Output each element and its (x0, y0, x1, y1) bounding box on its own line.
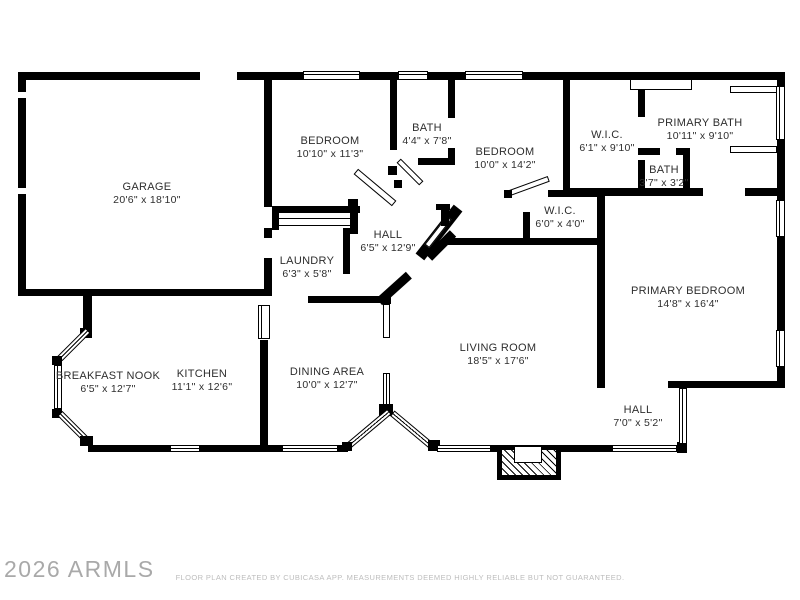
window (303, 71, 360, 80)
wall-segment (348, 199, 358, 208)
room-name: PRIMARY BEDROOM (631, 285, 745, 298)
room-label-living-room: LIVING ROOM 18'5" x 17'6" (460, 342, 537, 368)
window (398, 71, 428, 80)
wall-segment (523, 212, 530, 245)
room-label-bath-2: BATH 3'7" x 3'2" (639, 164, 688, 190)
wall-segment (436, 204, 450, 210)
closet-wall (272, 206, 279, 230)
room-dims: 6'5" x 12'9" (360, 242, 415, 255)
disclaimer-text: FLOOR PLAN CREATED BY CUBICASA APP. MEAS… (176, 573, 625, 582)
room-label-wic-1: W.I.C. 6'1" x 9'10" (579, 129, 634, 155)
room-dims: 10'11" x 9'10" (658, 130, 743, 143)
room-dims: 6'3" x 5'8" (280, 268, 334, 281)
wall-segment (18, 289, 272, 296)
bay-window (57, 328, 90, 361)
wall-segment (777, 72, 785, 86)
wall-segment (18, 72, 200, 80)
room-name: GARAGE (113, 181, 181, 194)
wall-segment (342, 442, 352, 451)
window (465, 71, 523, 80)
wall-segment (264, 258, 272, 296)
wall-segment (390, 72, 397, 150)
wall-segment (83, 296, 92, 332)
room-dims: 11'1" x 12'6" (172, 381, 233, 394)
wall-segment (548, 190, 604, 197)
front-door-leaf (383, 304, 390, 338)
wall-segment (18, 72, 26, 92)
room-dims: 10'0" x 12'7" (290, 379, 364, 392)
wall-segment (668, 381, 785, 388)
wall-segment (376, 272, 412, 305)
room-name: LAUNDRY (280, 255, 334, 268)
room-name: BATH (639, 164, 688, 177)
room-name: HALL (360, 229, 415, 242)
firebox (514, 446, 542, 463)
room-dims: 6'5" x 12'7" (56, 383, 160, 396)
shower-fixture (630, 79, 692, 90)
window (437, 445, 491, 452)
wall-segment (18, 194, 26, 296)
room-name: PRIMARY BATH (658, 117, 743, 130)
room-dims: 10'0" x 14'2" (474, 159, 536, 172)
pass-through-opening (258, 305, 270, 339)
closet-wall (350, 206, 358, 234)
room-label-laundry: LAUNDRY 6'3" x 5'8" (280, 255, 334, 281)
room-label-breakfast-nook: BREAKFAST NOOK 6'5" x 12'7" (56, 370, 160, 396)
room-label-hall-1: HALL 6'5" x 12'9" (360, 229, 415, 255)
wall-segment (308, 296, 383, 303)
room-name: KITCHEN (172, 368, 233, 381)
room-label-dining-area: DINING AREA 10'0" x 12'7" (290, 366, 364, 392)
room-dims: 7'0" x 5'2" (613, 417, 662, 430)
room-dims: 6'0" x 4'0" (535, 218, 584, 231)
room-dims: 4'4" x 7'8" (402, 135, 451, 148)
room-name: HALL (613, 404, 662, 417)
wall-segment (388, 166, 397, 175)
room-label-bedroom-2: BEDROOM 10'0" x 14'2" (474, 146, 536, 172)
watermark-armls: 2026 ARMLS (4, 556, 155, 583)
room-label-garage: GARAGE 20'6" x 18'10" (113, 181, 181, 207)
wall-segment (264, 228, 272, 238)
room-label-bath-1: BATH 4'4" x 7'8" (402, 122, 451, 148)
room-dims: 6'1" x 9'10" (579, 142, 634, 155)
room-name: LIVING ROOM (460, 342, 537, 355)
wall-segment (200, 445, 282, 452)
room-label-hall-2: HALL 7'0" x 5'2" (613, 404, 662, 430)
room-dims: 3'7" x 3'2" (639, 177, 688, 190)
wall-segment (563, 72, 570, 190)
wall-segment (448, 72, 455, 118)
wall-segment (88, 445, 170, 452)
room-label-kitchen: KITCHEN 11'1" x 12'6" (172, 368, 233, 394)
wall-segment (264, 72, 272, 207)
wall-segment (18, 98, 26, 188)
window (776, 86, 785, 140)
wall-segment (597, 190, 605, 388)
room-name: W.I.C. (535, 205, 584, 218)
window (679, 388, 687, 444)
closet-wall (272, 206, 360, 213)
vanity-counter (730, 146, 777, 153)
window (776, 200, 785, 237)
wall-segment (745, 188, 785, 196)
window (282, 445, 338, 452)
room-label-bedroom-1: BEDROOM 10'10" x 11'3" (297, 135, 364, 161)
wall-segment (418, 158, 455, 165)
wall-segment (428, 72, 465, 80)
window (170, 445, 200, 452)
wall-segment (777, 237, 785, 330)
wall-segment (260, 340, 268, 448)
room-name: BEDROOM (474, 146, 536, 159)
door-swing (508, 176, 550, 196)
room-dims: 14'8" x 16'4" (631, 298, 745, 311)
floor-plan-canvas: GARAGE 20'6" x 18'10" BEDROOM 10'10" x 1… (0, 0, 800, 600)
wall-segment (561, 445, 612, 452)
room-name: BATH (402, 122, 451, 135)
room-name: DINING AREA (290, 366, 364, 379)
room-dims: 18'5" x 17'6" (460, 355, 537, 368)
window (776, 330, 785, 367)
wall-segment (394, 180, 402, 188)
closet-sliding-door (276, 218, 356, 226)
room-label-primary-bath: PRIMARY BATH 10'11" x 9'10" (658, 117, 743, 143)
wall-segment (383, 296, 391, 304)
wall-segment (52, 356, 62, 365)
window (383, 373, 390, 407)
room-name: BEDROOM (297, 135, 364, 148)
room-label-primary-bedroom: PRIMARY BEDROOM 14'8" x 16'4" (631, 285, 745, 311)
room-name: W.I.C. (579, 129, 634, 142)
room-name: BREAKFAST NOOK (56, 370, 160, 383)
vanity-counter (730, 86, 777, 93)
wall-segment (504, 190, 512, 198)
room-label-wic-2: W.I.C. 6'0" x 4'0" (535, 205, 584, 231)
room-dims: 20'6" x 18'10" (113, 194, 181, 207)
wall-segment (638, 148, 660, 155)
window (612, 445, 677, 452)
room-dims: 10'10" x 11'3" (297, 148, 364, 161)
wall-segment (343, 228, 350, 274)
